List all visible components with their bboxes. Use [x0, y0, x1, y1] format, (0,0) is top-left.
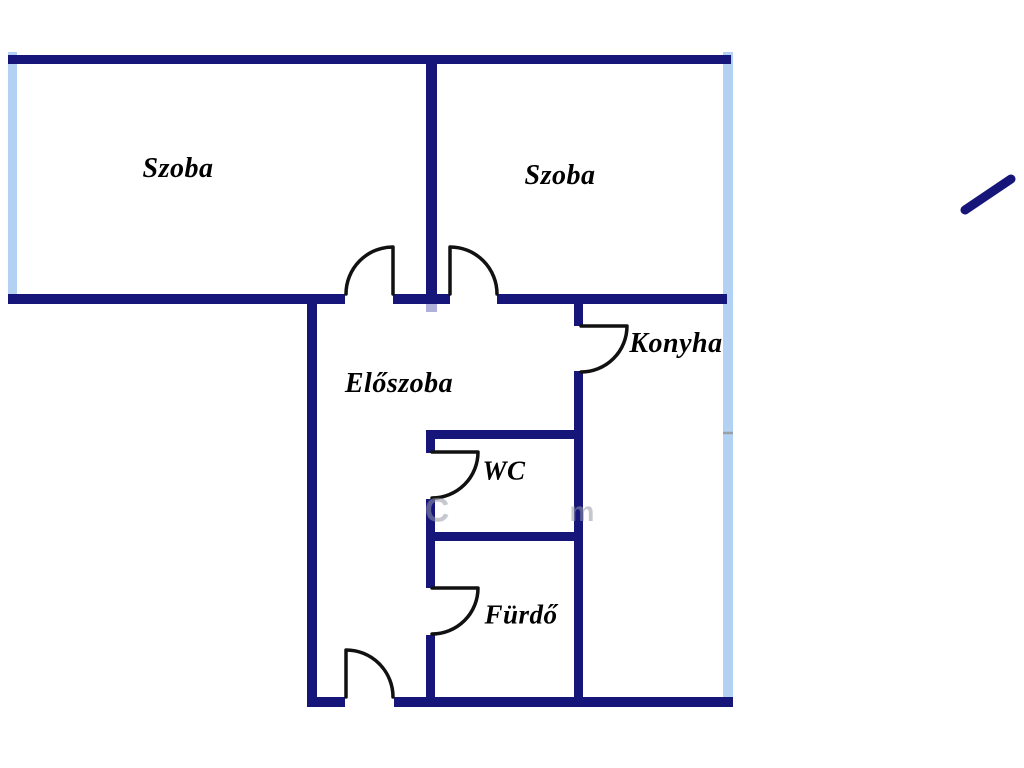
floor-plan-canvas: Szoba Szoba Előszoba Konyha WC Fürdő C m [0, 0, 1024, 768]
watermark-fragment-1: C [425, 492, 450, 531]
wall-kitchen-main [574, 371, 583, 707]
wall-mid-left [8, 294, 345, 304]
wall-junction-shadow [426, 304, 437, 312]
room-label-konyha: Konyha [629, 328, 722, 360]
wall-top [8, 55, 731, 64]
wall-mid-center [393, 294, 450, 304]
wall-bath-left-lower [426, 635, 435, 707]
door-bathroom [432, 588, 478, 634]
door-entrance [346, 650, 393, 697]
wall-between-rooms [426, 55, 437, 304]
wall-mid-right [497, 294, 727, 304]
door-szoba-right [450, 247, 497, 294]
wall-hall-left [307, 294, 317, 707]
room-label-szoba-right: Szoba [525, 160, 596, 192]
floor-plan-drawing [0, 0, 1024, 768]
door-szoba-left [346, 247, 393, 294]
window-left [8, 52, 17, 304]
wall-wc-bathroom-divider [426, 532, 583, 541]
watermark-fragment-2: m [570, 496, 595, 528]
wall-wc-top [426, 430, 583, 439]
window-right [723, 52, 733, 707]
wall-bottom-right [394, 697, 733, 707]
room-label-eloszoba: Előszoba [345, 368, 453, 400]
wall-kitchen-stub [574, 304, 583, 326]
north-mark-line [965, 179, 1011, 210]
room-label-furdo: Fürdő [484, 600, 557, 631]
door-kitchen [581, 326, 627, 372]
room-label-szoba-left: Szoba [143, 153, 214, 185]
room-label-wc: WC [482, 456, 525, 487]
wall-bath-left-upper [426, 541, 435, 588]
wall-bottom-left [307, 697, 345, 707]
